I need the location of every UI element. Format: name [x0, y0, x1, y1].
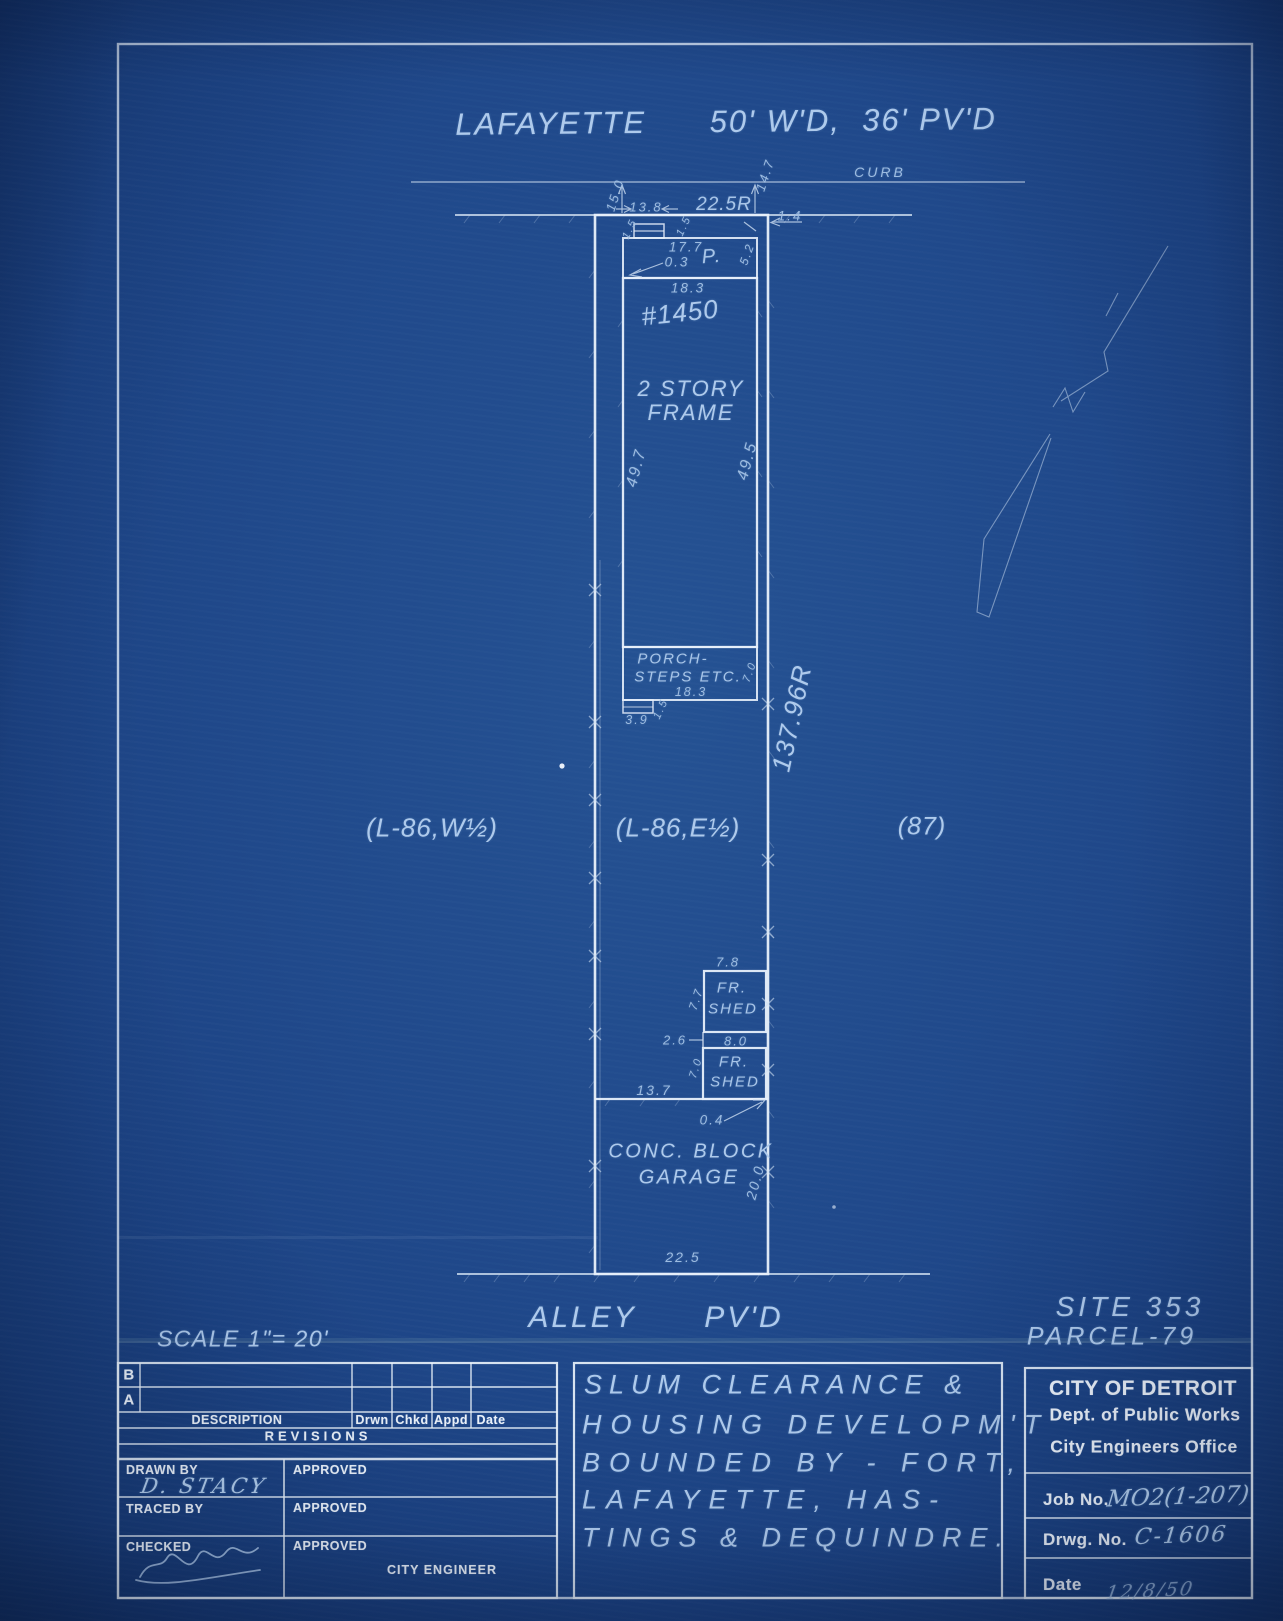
porch-steps-line1: PORCH- [637, 651, 708, 668]
dim-garage-off-label: 13.7 [636, 1082, 671, 1098]
lot-left-label: (L-86,W½) [366, 813, 498, 844]
approved-label-2: APPROVED [293, 1501, 367, 1515]
drawing-title-line5: TINGS & DEQUINDRE. [582, 1523, 1011, 1554]
dim-porch-w-label: 17.7 [669, 240, 703, 255]
drawn-by-value: D. STACY [139, 1474, 269, 1498]
drwg-no-label: Drwg. No. [1043, 1530, 1127, 1550]
shed1-line2: SHED [708, 1001, 758, 1018]
dim-step-w-label: 3.9 [625, 713, 648, 727]
revisions-header: REVISIONS [265, 1429, 372, 1444]
porch-label: P. [701, 245, 723, 269]
dim-garage-corner-label: 0.4 [700, 1113, 725, 1128]
traced-by-label: TRACED BY [126, 1502, 203, 1516]
dim-steps-w-label: 18.3 [675, 685, 707, 699]
dim-13-8-label: 13.8 [629, 200, 662, 215]
building-desc-line1: 2 STORY [638, 376, 745, 402]
city-engineer-label: CITY ENGINEER [387, 1563, 497, 1577]
org-name-line1: CITY OF DETROIT [1049, 1377, 1237, 1401]
garage-desc-line1: CONC. BLOCK [608, 1141, 773, 1164]
dim-shed2-w-label: 8.0 [724, 1034, 748, 1049]
drawing-title-line3: BOUNDED BY - FORT, [582, 1448, 1024, 1479]
lot-outline [595, 215, 768, 1274]
col-date-header: Date [476, 1413, 505, 1427]
shed2-line2: SHED [710, 1074, 760, 1091]
shed2-line1: FR. [719, 1054, 749, 1071]
drawing-title-line2: HOUSING DEVELOPM'T [582, 1410, 1049, 1441]
scale-label: SCALE 1"= 20' [157, 1326, 329, 1353]
dim-shed1-w-label: 7.8 [716, 955, 740, 970]
org-name-line3: City Engineers Office [1050, 1437, 1238, 1458]
org-name-line2: Dept. of Public Works [1049, 1405, 1240, 1426]
col-appd-header: Appd [434, 1413, 468, 1427]
blueprint-sheet: LAFAYETTE 50' W'D, 36' PV'D CURB 15.0 13… [0, 0, 1283, 1621]
shed1-line1: FR. [717, 980, 747, 997]
porch-steps-line2: STEPS ETC. [634, 669, 742, 686]
date-label: Date [1043, 1575, 1082, 1595]
job-no-value: MO2(1-207) [1106, 1482, 1251, 1513]
job-no-label: Job No. [1043, 1490, 1109, 1510]
rev-row-b-label: B [123, 1367, 134, 1384]
street-lines [411, 182, 1025, 1274]
drawing-title-line1: SLUM CLEARANCE & [584, 1370, 969, 1401]
dim-porch-off-label: 0.3 [665, 255, 690, 270]
dim-shed-gap-label: 2.6 [663, 1033, 687, 1048]
street-name-label: LAFAYETTE 50' W'D, 36' PV'D [455, 101, 997, 143]
drwg-no-value: C-1606 [1133, 1522, 1228, 1550]
approved-label-1: APPROVED [293, 1463, 367, 1477]
description-header: DESCRIPTION [192, 1413, 283, 1427]
site-number-label: SITE 353 [1056, 1291, 1205, 1323]
checked-label: CHECKED [126, 1540, 191, 1554]
dim-1-4-label: 1.4 [778, 209, 803, 224]
dim-garage-w-label: 22.5 [665, 1249, 700, 1265]
approved-label-3: APPROVED [293, 1539, 367, 1553]
garage-desc-line2: GARAGE [639, 1167, 740, 1190]
curb-label: CURB [854, 164, 906, 180]
rev-row-a-label: A [123, 1392, 134, 1409]
parcel-number-label: PARCEL-79 [1027, 1323, 1197, 1352]
scratch-crease-sketch [977, 246, 1168, 617]
lot-right-label: (87) [898, 813, 946, 842]
drawing-title-line4: LAFAYETTE, HAS- [582, 1485, 947, 1516]
col-chkd-header: Chkd [395, 1413, 428, 1427]
lot-center-label: (L-86,E½) [616, 813, 741, 844]
dim-bldg-w-label: 18.3 [671, 281, 705, 296]
alley-label: ALLEY PV'D [528, 1301, 783, 1335]
dim-lot-width-label: 22.5R [696, 194, 752, 216]
col-drwn-header: Drwn [355, 1413, 388, 1427]
building-desc-line2: FRAME [648, 400, 735, 426]
